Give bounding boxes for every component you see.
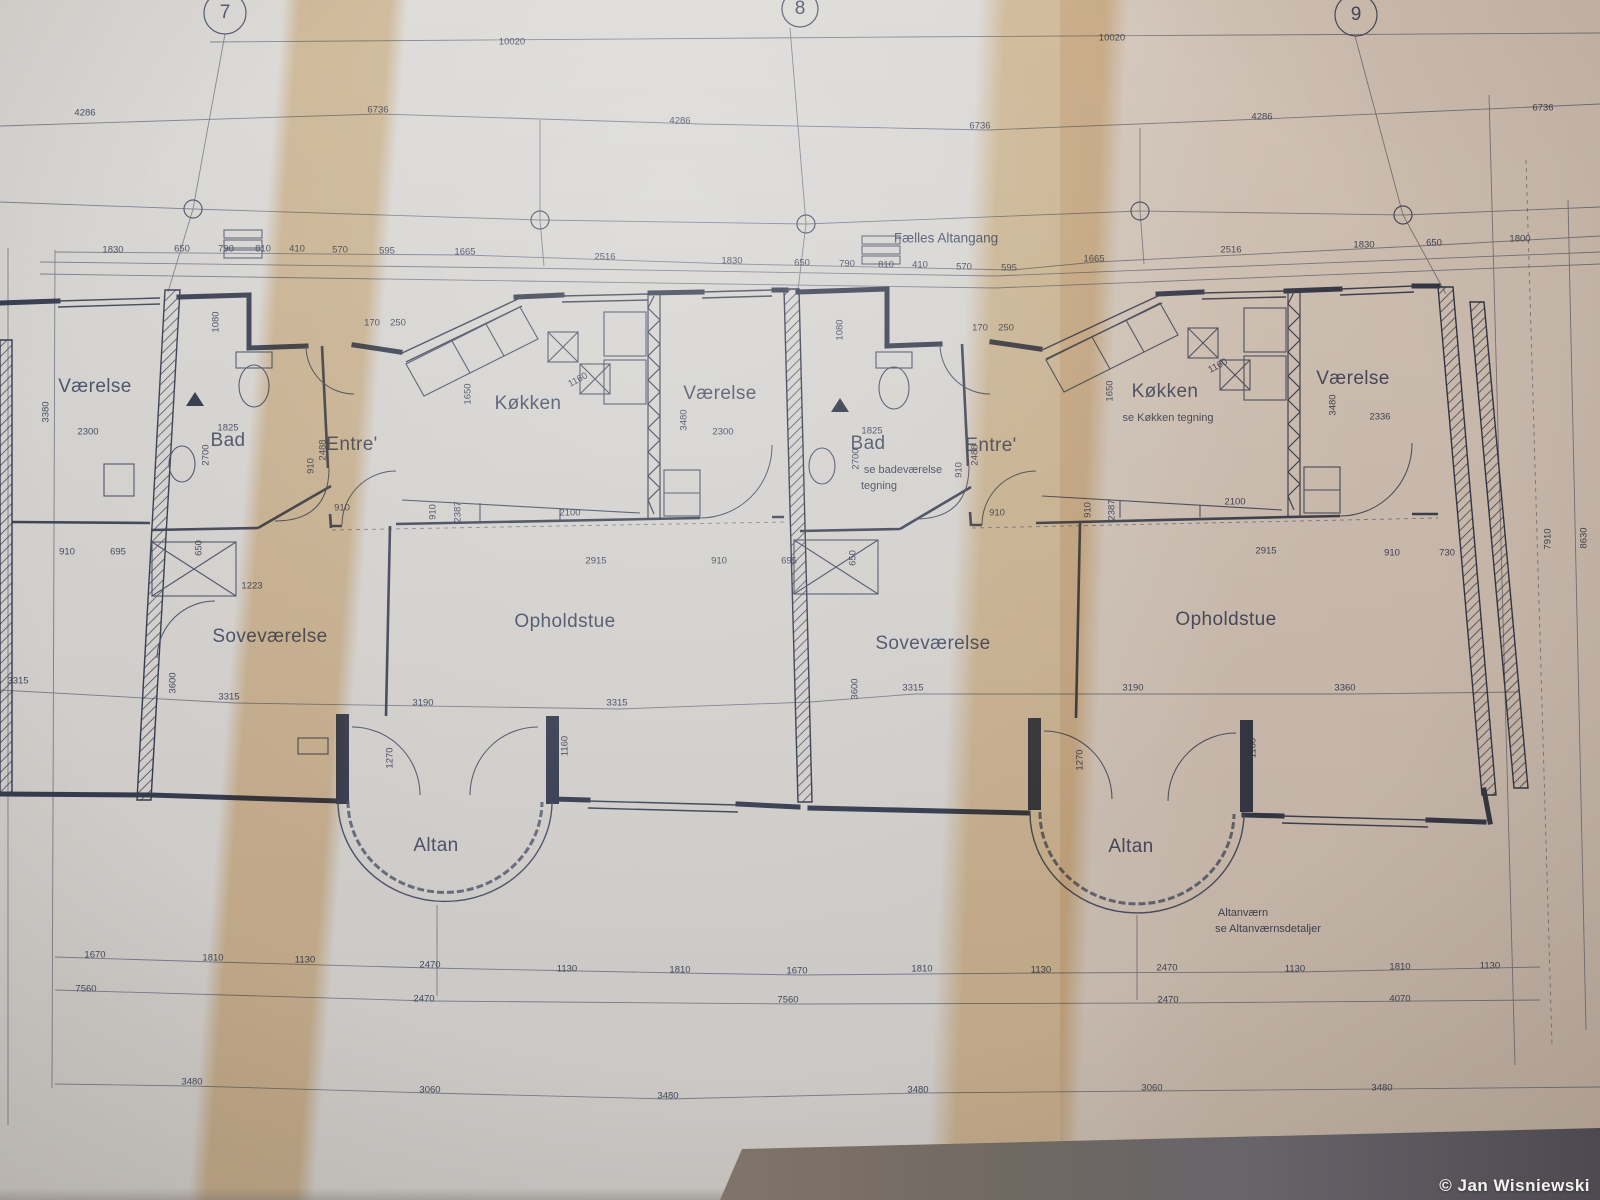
dim-label: 910	[711, 556, 727, 567]
dim-label: 6736	[367, 105, 388, 116]
corridor-label: Fælles Altangang	[894, 231, 998, 246]
plan-annotations: VærelseBadEntre'SoveværelseKøkkenVærelse…	[0, 0, 1600, 1200]
dimv-label: 3600	[168, 672, 179, 693]
dimd-label: 1160	[566, 370, 589, 389]
note-label: tegning	[861, 480, 897, 492]
grid-bubble-7: 7	[220, 2, 231, 24]
dim-label: 3315	[218, 692, 239, 703]
copyright-watermark: © Jan Wisniewski	[1439, 1176, 1590, 1196]
dimv-label: 910	[1083, 502, 1094, 518]
dimv-label: 1080	[211, 311, 222, 332]
dim-label: 2470	[413, 994, 434, 1005]
dimv-label: 3480	[679, 409, 690, 430]
dim-label: 1830	[102, 245, 123, 256]
room-label-opholdstue-2: Opholdstue	[1175, 609, 1276, 631]
dim-label: 7560	[75, 984, 96, 995]
dim-label: 1810	[1389, 962, 1410, 973]
room-label-vaerelse-left: Værelse	[58, 376, 132, 398]
dim-label: 2100	[1224, 497, 1245, 508]
dim-label: 3480	[1371, 1083, 1392, 1094]
dim-label: 3190	[412, 698, 433, 709]
dim-label: 790	[839, 259, 855, 270]
dimv-label: 1270	[1075, 749, 1086, 770]
dim-label: 790	[218, 244, 234, 255]
dimv-label: 2700	[851, 448, 862, 469]
dimv-label: 8630	[1579, 527, 1590, 548]
note-label: se Køkken tegning	[1122, 412, 1213, 424]
dim-label: 4070	[1389, 994, 1410, 1005]
dim-label: 650	[1426, 238, 1442, 249]
dim-label: 2470	[1156, 963, 1177, 974]
dim-label: 1223	[241, 581, 262, 592]
dimv-label: 1650	[1105, 380, 1116, 401]
dim-label: 2470	[419, 960, 440, 971]
dim-label: 910	[989, 508, 1005, 519]
dim-label: 250	[390, 318, 406, 329]
dim-label: 3190	[1122, 683, 1143, 694]
dim-label: 2915	[585, 556, 606, 567]
dim-label: 1830	[1353, 240, 1374, 251]
dimv-label: 3600	[850, 678, 861, 699]
dimv-label: 1160	[560, 736, 571, 756]
room-label-koekken-2: Køkken	[1132, 381, 1199, 403]
dim-label: 570	[956, 262, 972, 273]
dim-label: 1665	[454, 247, 475, 258]
dim-label: 3315	[606, 698, 627, 709]
dim-label: 170	[364, 318, 380, 329]
dim-label: 810	[878, 260, 894, 271]
dimv-label: 1270	[385, 747, 396, 768]
dim-label: 1665	[1083, 254, 1104, 265]
dim-label: 1825	[861, 426, 882, 437]
room-label-sovevaerelse-1: Soveværelse	[212, 626, 327, 648]
dim-label: 650	[174, 244, 190, 255]
room-label-koekken-1: Køkken	[495, 393, 562, 415]
dim-label: 6736	[1532, 103, 1553, 114]
dim-label: 250	[998, 323, 1014, 334]
dim-label: 910	[334, 503, 350, 514]
dimv-label: 1080	[835, 319, 846, 340]
dim-label: 1810	[911, 964, 932, 975]
dim-label: 3480	[181, 1077, 202, 1088]
dim-label: 910	[59, 547, 75, 558]
blueprint-paper: VærelseBadEntre'SoveværelseKøkkenVærelse…	[0, 0, 1600, 1200]
dim-label: 3480	[657, 1091, 678, 1102]
room-label-vaerelse-1: Værelse	[683, 383, 757, 405]
dim-label: 1130	[1480, 961, 1500, 972]
dim-label: 3315	[902, 683, 923, 694]
dim-label: 595	[1001, 263, 1017, 274]
dimv-label: 3480	[1328, 394, 1339, 415]
dim-label: 1670	[786, 966, 807, 977]
dim-label: 4286	[1251, 112, 1272, 123]
dim-label: 4286	[669, 116, 690, 127]
dim-label: 1130	[1285, 964, 1305, 975]
room-label-opholdstue-1: Opholdstue	[514, 611, 615, 633]
dim-label: 1130	[295, 955, 315, 966]
dim-label: 1810	[669, 965, 690, 976]
grid-bubble-9: 9	[1351, 4, 1362, 26]
dimv-label: 650	[194, 540, 205, 556]
dimv-label: 1160	[1248, 738, 1259, 758]
room-label-sovevaerelse-2: Soveværelse	[875, 633, 990, 655]
dimv-label: 7910	[1543, 528, 1554, 549]
dim-label: 810	[255, 244, 271, 255]
dim-label: 2300	[712, 427, 733, 438]
photo-of-floor-plan: VærelseBadEntre'SoveværelseKøkkenVærelse…	[0, 0, 1600, 1200]
dim-label: 410	[289, 244, 305, 255]
dimd-label: 1160	[1206, 356, 1229, 375]
dim-label: 2516	[1220, 245, 1241, 256]
note-label: se badeværelse	[864, 464, 942, 476]
dim-label: 4286	[74, 108, 95, 119]
dim-label: 650	[794, 258, 810, 269]
note-label: Altanværn	[1218, 907, 1268, 919]
dim-label: 3315	[7, 676, 28, 687]
dimv-label: 2387	[1107, 499, 1118, 520]
dim-label: 170	[972, 323, 988, 334]
dim-label: 1800	[1509, 234, 1530, 245]
dim-label: 3060	[419, 1085, 440, 1096]
room-label-altan-2: Altan	[1108, 836, 1153, 858]
dim-label: 3060	[1141, 1083, 1162, 1094]
dim-label: 1670	[84, 950, 105, 961]
dim-label: 3360	[1334, 683, 1355, 694]
dim-label: 2300	[77, 427, 98, 438]
dimv-label: 2488	[318, 439, 329, 460]
dim-label: 7560	[777, 995, 798, 1006]
room-label-entre-1: Entre'	[326, 434, 377, 456]
room-label-altan-1: Altan	[413, 835, 458, 857]
dimv-label: 2488	[970, 444, 981, 465]
dim-label: 2516	[594, 252, 615, 263]
dimv-label: 650	[848, 550, 859, 566]
dim-label: 570	[332, 245, 348, 256]
dim-label: 695	[110, 547, 126, 558]
note-label: se Altanværnsdetaljer	[1215, 923, 1321, 935]
dimv-label: 2700	[201, 444, 212, 465]
dim-label: 1130	[1031, 965, 1051, 976]
dim-label: 595	[379, 246, 395, 257]
dimv-label: 910	[954, 462, 965, 478]
room-label-vaerelse-2: Værelse	[1316, 368, 1390, 390]
dim-label: 910	[1384, 548, 1400, 559]
dim-label: 2336	[1369, 412, 1390, 423]
dim-label: 10020	[1099, 33, 1125, 44]
dim-label: 2470	[1157, 995, 1178, 1006]
dim-label: 410	[912, 260, 928, 271]
dim-label: 1810	[202, 953, 223, 964]
dimv-label: 910	[428, 504, 439, 520]
dim-label: 6736	[969, 121, 990, 132]
dim-label: 1825	[217, 423, 238, 434]
dim-label: 1130	[557, 964, 577, 975]
dimv-label: 2387	[453, 501, 464, 522]
dimv-label: 3380	[41, 401, 52, 422]
dimv-label: 910	[306, 458, 317, 474]
dim-label: 3480	[907, 1085, 928, 1096]
dimv-label: 1650	[463, 383, 474, 404]
grid-bubble-8: 8	[795, 0, 806, 20]
dim-label: 730	[1439, 548, 1455, 559]
dim-label: 2915	[1255, 546, 1276, 557]
dim-label: 695	[781, 556, 797, 567]
dim-label: 1830	[721, 256, 742, 267]
dim-label: 2100	[559, 508, 580, 519]
dim-label: 10020	[499, 37, 525, 48]
